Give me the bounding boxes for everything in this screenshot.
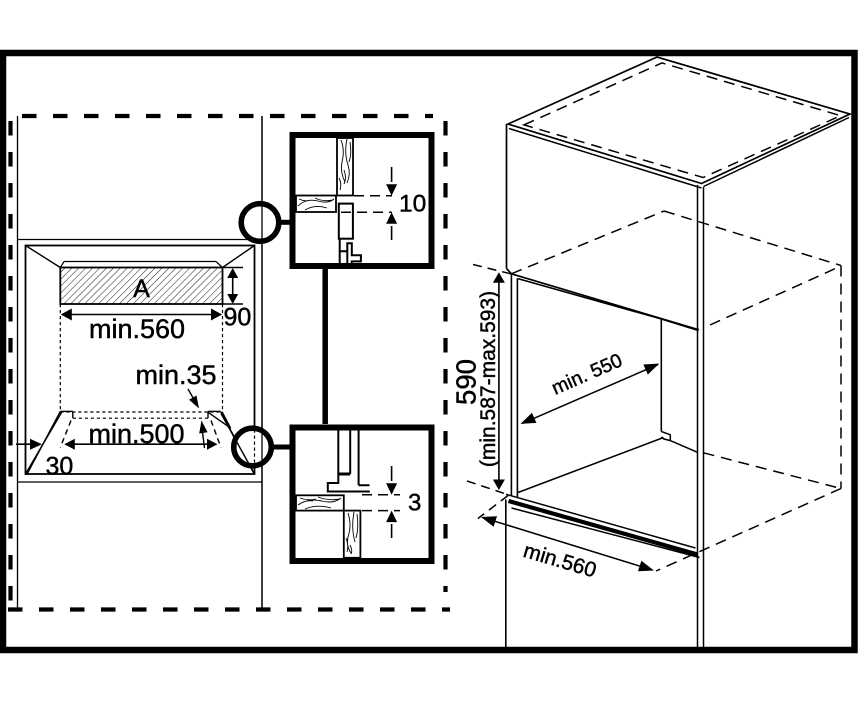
svg-text:3: 3: [408, 490, 421, 517]
svg-text:min.35: min.35: [135, 360, 216, 390]
svg-text:(min.587-max.593): (min.587-max.593): [477, 291, 500, 467]
svg-text:A: A: [133, 275, 150, 303]
svg-text:30: 30: [46, 452, 74, 480]
svg-text:min.560: min.560: [89, 314, 185, 344]
svg-text:10: 10: [399, 191, 426, 218]
svg-text:min.500: min.500: [88, 419, 184, 449]
svg-text:90: 90: [224, 304, 252, 332]
